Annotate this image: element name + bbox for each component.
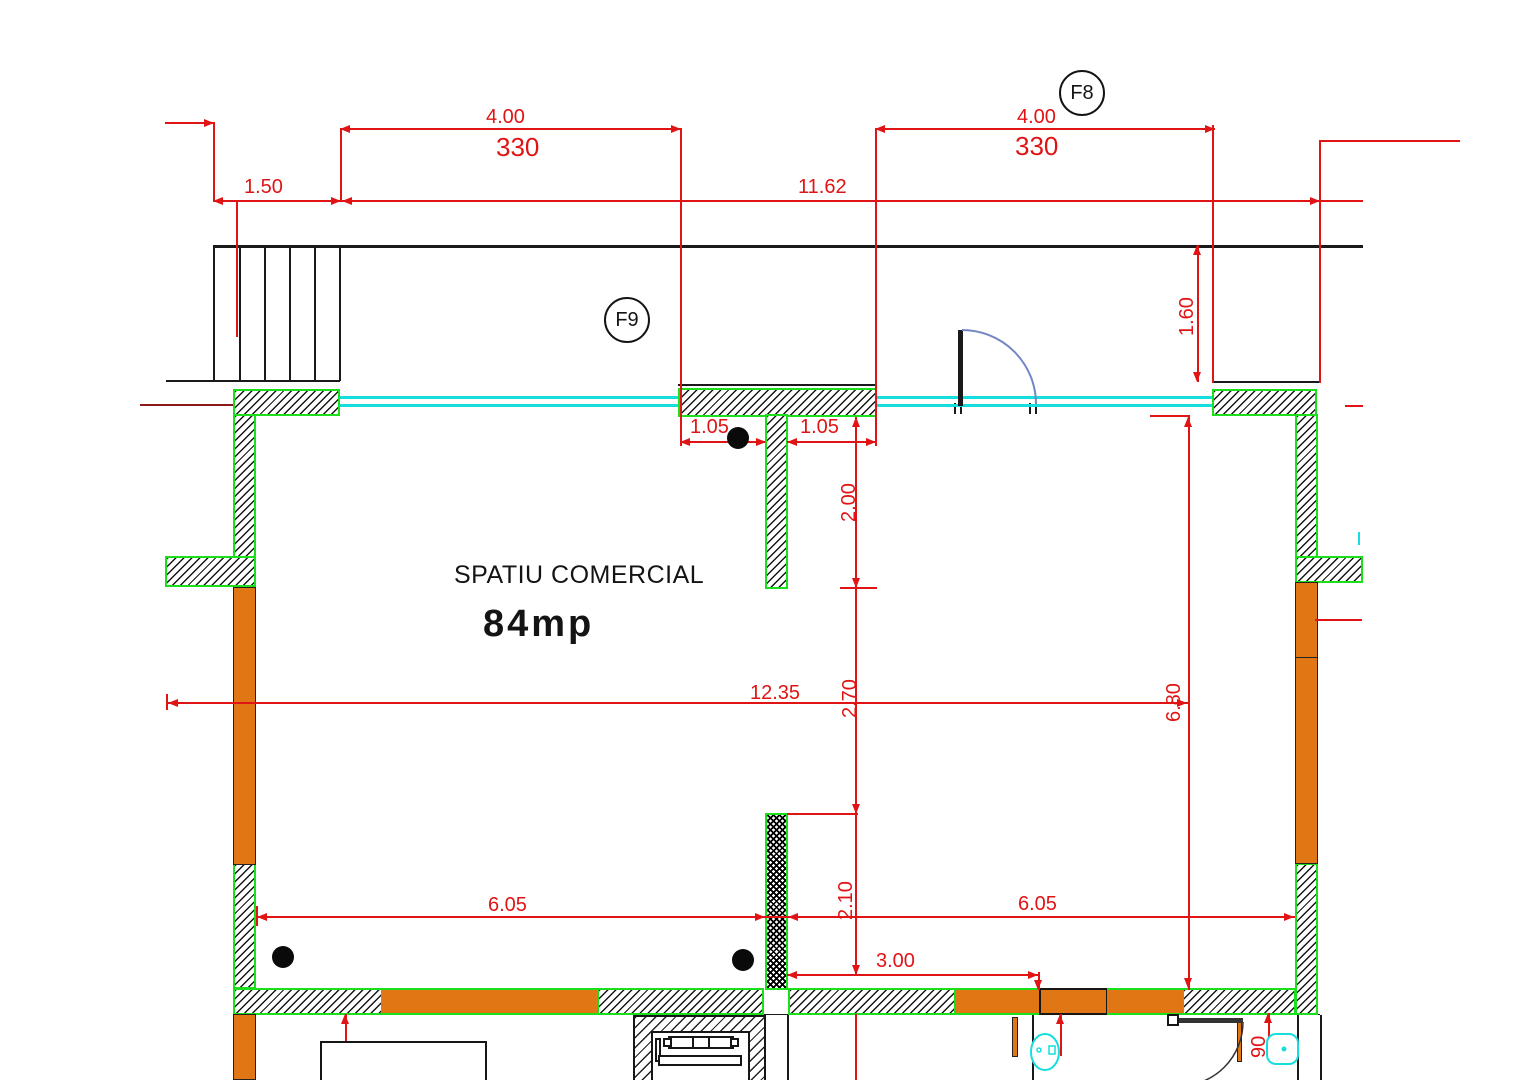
west-column-below <box>233 1014 256 1080</box>
dim-arrow <box>788 913 798 921</box>
column-dot <box>727 427 749 449</box>
dim-text-6.80: 6.80 <box>1163 683 1185 722</box>
machinery-part <box>730 1038 739 1047</box>
partition-upper <box>765 414 788 589</box>
dim-arrow <box>1056 1014 1064 1024</box>
dim-ext <box>340 128 342 202</box>
column-dot <box>272 946 294 968</box>
dim-arrow <box>756 438 766 446</box>
stair-tread <box>289 247 291 381</box>
dim-arrow <box>755 913 765 921</box>
south-wall-segment <box>788 988 956 1015</box>
dim-arrow <box>257 913 267 921</box>
dim-text-330-left: 330 <box>496 134 539 160</box>
dim-text-2.10: 2.10 <box>835 881 857 920</box>
dim-text-2.00: 2.00 <box>838 483 860 522</box>
dim-line-3.00 <box>787 974 1038 976</box>
dim-text-1.60: 1.60 <box>1176 297 1198 336</box>
west-column <box>233 587 256 865</box>
dim-ext <box>1212 125 1214 383</box>
dim-line-1.05-left <box>680 441 765 443</box>
building-top-line <box>213 245 1363 248</box>
dim-line-6.05 <box>256 916 1295 918</box>
dim-text-6.05-right: 6.05 <box>1018 893 1057 915</box>
stair-tread <box>239 247 241 381</box>
dim-arrow <box>341 1014 349 1024</box>
machinery-part <box>692 1036 710 1049</box>
dim-text-2.70: 2.70 <box>839 679 861 718</box>
counter-outline <box>320 1041 487 1080</box>
partition-lower <box>765 813 788 990</box>
orange-strip-below <box>1012 1017 1018 1057</box>
dim-arrow <box>787 971 797 979</box>
dim-arrow <box>1193 245 1201 255</box>
room-area-label: 84mp <box>483 603 594 646</box>
dim-text-90: 90 <box>1248 1036 1270 1058</box>
south-wall-beam <box>1107 988 1183 1015</box>
wc-door-swing-arc <box>1110 1015 1250 1080</box>
dim-text-330-right: 330 <box>1015 133 1058 159</box>
dim-text-6.05-left: 6.05 <box>488 894 527 916</box>
dim-arrow <box>1310 197 1320 205</box>
dim-text-3.00: 3.00 <box>876 950 915 972</box>
dim-ext <box>236 200 238 337</box>
dim-arrow <box>342 197 352 205</box>
south-wall-segment <box>1182 988 1296 1015</box>
west-wall-protrusion <box>165 556 256 587</box>
dim-line-12.35 <box>166 702 1188 704</box>
sink-fixture <box>1025 1030 1067 1080</box>
dim-arrow <box>1184 417 1192 427</box>
partition-line-below <box>787 1015 789 1080</box>
dim-arrow <box>866 438 876 446</box>
dim-line-4.00-right <box>875 128 1215 130</box>
column-dot <box>732 949 754 971</box>
dim-arrow <box>331 197 341 205</box>
north-wall-left-pier <box>233 389 340 416</box>
dim-line-11.62 <box>213 200 1363 202</box>
dim-text-4.00-left: 4.00 <box>486 106 525 128</box>
dim-ext <box>213 122 215 202</box>
dim-tick <box>787 813 858 815</box>
dim-tick <box>1345 405 1363 407</box>
dim-text-4.00-right: 4.00 <box>1017 106 1056 128</box>
dim-line-6.80 <box>1188 415 1190 990</box>
dim-ext <box>680 128 682 446</box>
south-wall-beam <box>955 988 1039 1015</box>
dim-arrow <box>852 965 860 975</box>
right-wall-outer-below <box>1320 1015 1322 1080</box>
dim-arrow <box>1205 125 1215 133</box>
dim-arrow <box>680 438 690 446</box>
east-wall-upper <box>1295 414 1318 559</box>
dim-arrow <box>213 197 223 205</box>
dim-ext <box>1319 140 1321 383</box>
dim-arrow <box>875 125 885 133</box>
dim-arrow <box>340 125 350 133</box>
dim-line-4.00-left <box>340 128 680 130</box>
dim-arrow <box>787 438 797 446</box>
dim-arrow <box>1034 980 1042 990</box>
dim-arrow <box>852 417 860 427</box>
dim-line-1.05-right <box>787 441 875 443</box>
dim-arrow <box>204 119 214 127</box>
dim-arrow <box>1028 971 1038 979</box>
north-wall-mid-pier <box>678 388 877 417</box>
dim-arrow <box>1184 978 1192 988</box>
dim-text-1.05-left: 1.05 <box>690 416 729 438</box>
north-wall-right-pier <box>1212 389 1317 416</box>
south-wall-column <box>1039 988 1108 1015</box>
glazing-end-tick <box>1358 532 1360 545</box>
dim-text-11.62: 11.62 <box>798 176 847 198</box>
dim-arrow <box>852 804 860 814</box>
west-wall-lower <box>233 863 256 989</box>
wall-top-line-mid <box>678 384 877 386</box>
dim-text-12.35: 12.35 <box>750 682 800 704</box>
dim-arrow <box>1193 372 1201 382</box>
stair-tread <box>314 247 316 381</box>
dim-line <box>1319 140 1460 142</box>
window-glazing-left <box>340 396 678 399</box>
east-wall-protrusion <box>1295 556 1363 583</box>
south-wall-segment <box>597 988 764 1015</box>
machinery-part <box>663 1038 672 1047</box>
dim-arrow <box>1284 913 1294 921</box>
room-name-label: SPATIU COMERCIAL <box>454 561 704 590</box>
south-wall-segment <box>233 988 383 1015</box>
stair-tread <box>213 247 215 381</box>
dim-text-1.50: 1.50 <box>244 176 283 198</box>
east-wall-lower <box>1295 863 1318 1015</box>
window-glazing-left <box>340 404 678 407</box>
dim-arrow <box>1264 1013 1272 1023</box>
grid-bubble-f9-label: F9 <box>615 309 638 332</box>
dim-ext <box>855 1014 857 1080</box>
grid-bubble-f8-label: F8 <box>1070 82 1093 105</box>
grid-bubble-f8: F8 <box>1059 70 1105 116</box>
wall-top-line-right <box>1212 381 1320 383</box>
dim-lead <box>1150 415 1188 417</box>
entrance-door-swing-arc <box>955 325 1045 410</box>
stair-tread <box>264 247 266 381</box>
dim-ext <box>875 128 877 446</box>
dim-tick <box>1315 619 1362 621</box>
east-column-lower <box>1295 657 1318 864</box>
floor-plan-canvas: F8 F9 1.50 4.00 330 11.62 4.00 330 1.60 … <box>0 0 1528 1080</box>
dim-line-dark <box>140 404 233 406</box>
dim-arrow <box>852 578 860 588</box>
stair-tread <box>339 247 341 381</box>
west-wall-upper <box>233 414 256 559</box>
grid-bubble-f9: F9 <box>604 297 650 343</box>
dim-arrow <box>671 125 681 133</box>
machinery-part <box>658 1055 742 1066</box>
south-wall-beam <box>382 988 598 1015</box>
dim-text-1.05-right: 1.05 <box>800 416 839 438</box>
dim-arrow <box>168 699 178 707</box>
